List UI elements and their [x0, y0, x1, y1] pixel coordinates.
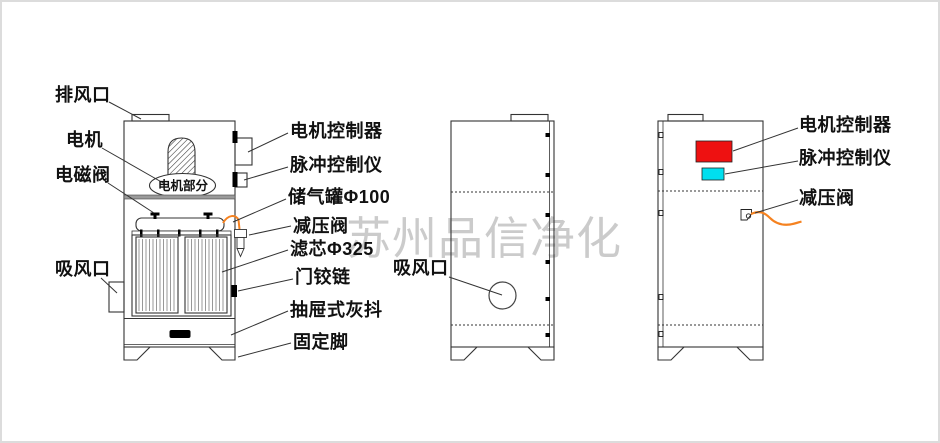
air-tube: [223, 216, 240, 229]
drawer-handle: [170, 330, 191, 338]
air-tank-shape: [136, 218, 224, 231]
label-suction-inlet: 吸风口: [55, 260, 111, 278]
label-exhaust-outlet: 排风口: [55, 86, 111, 104]
side-top-protrusion: [511, 115, 548, 122]
pressure-reducing-valve-shape: [235, 230, 247, 257]
front-view: [109, 115, 252, 361]
diagram-line-art: [2, 2, 940, 443]
edge-mark: [233, 131, 238, 143]
motor-controller-red-box: [696, 141, 732, 162]
divider-band: [124, 195, 235, 199]
foot-right: [737, 347, 763, 360]
label-solenoid-valve: 电磁阀: [55, 166, 111, 184]
exhaust-outlet-shape: [132, 115, 169, 122]
label-filter-cartridge: 滤芯Φ325: [290, 240, 374, 258]
label-back-pressure-reducing-valve: 减压阀: [799, 189, 855, 207]
label-pressure-reducing-valve: 减压阀: [293, 217, 349, 235]
foot-left: [124, 347, 150, 360]
side-cabinet: [451, 121, 554, 347]
side-view: [451, 115, 554, 361]
pressure-reducing-valve-shape: [741, 210, 752, 221]
label-motor: 电机: [66, 131, 103, 149]
foot-right: [528, 347, 554, 360]
label-drawer-ash-tray: 抽屉式灰抖: [290, 301, 383, 319]
pulse-controller-cyan-box: [702, 168, 724, 180]
foot-left: [658, 347, 684, 360]
label-motor-controller: 电机控制器: [290, 122, 383, 140]
filter-cartridge-right: [185, 237, 227, 313]
door-hinge-mark: [232, 285, 238, 297]
label-side-suction-inlet: 吸风口: [393, 259, 449, 277]
air-tube: [751, 212, 802, 225]
suction-inlet-box: [109, 282, 124, 312]
label-fixed-foot: 固定脚: [293, 333, 349, 351]
label-back-pulse-controller: 脉冲控制仪: [799, 149, 892, 167]
label-motor-section: 电机部分: [149, 180, 217, 193]
label-back-motor-controller: 电机控制器: [799, 116, 892, 134]
filter-cartridge-left: [136, 237, 178, 313]
back-top-protrusion: [668, 115, 703, 122]
foot-right: [209, 347, 235, 360]
edge-mark: [233, 172, 238, 187]
foot-left: [451, 347, 477, 360]
label-door-hinge: 门铰链: [295, 268, 351, 286]
dust-collector-diagram: 苏州品信净化: [0, 0, 940, 443]
label-pulse-controller: 脉冲控制仪: [290, 156, 383, 174]
back-view: [658, 115, 802, 361]
label-air-tank: 储气罐Φ100: [288, 188, 390, 206]
suction-inlet-circle: [489, 282, 516, 309]
back-hinge-marks: [659, 133, 663, 337]
